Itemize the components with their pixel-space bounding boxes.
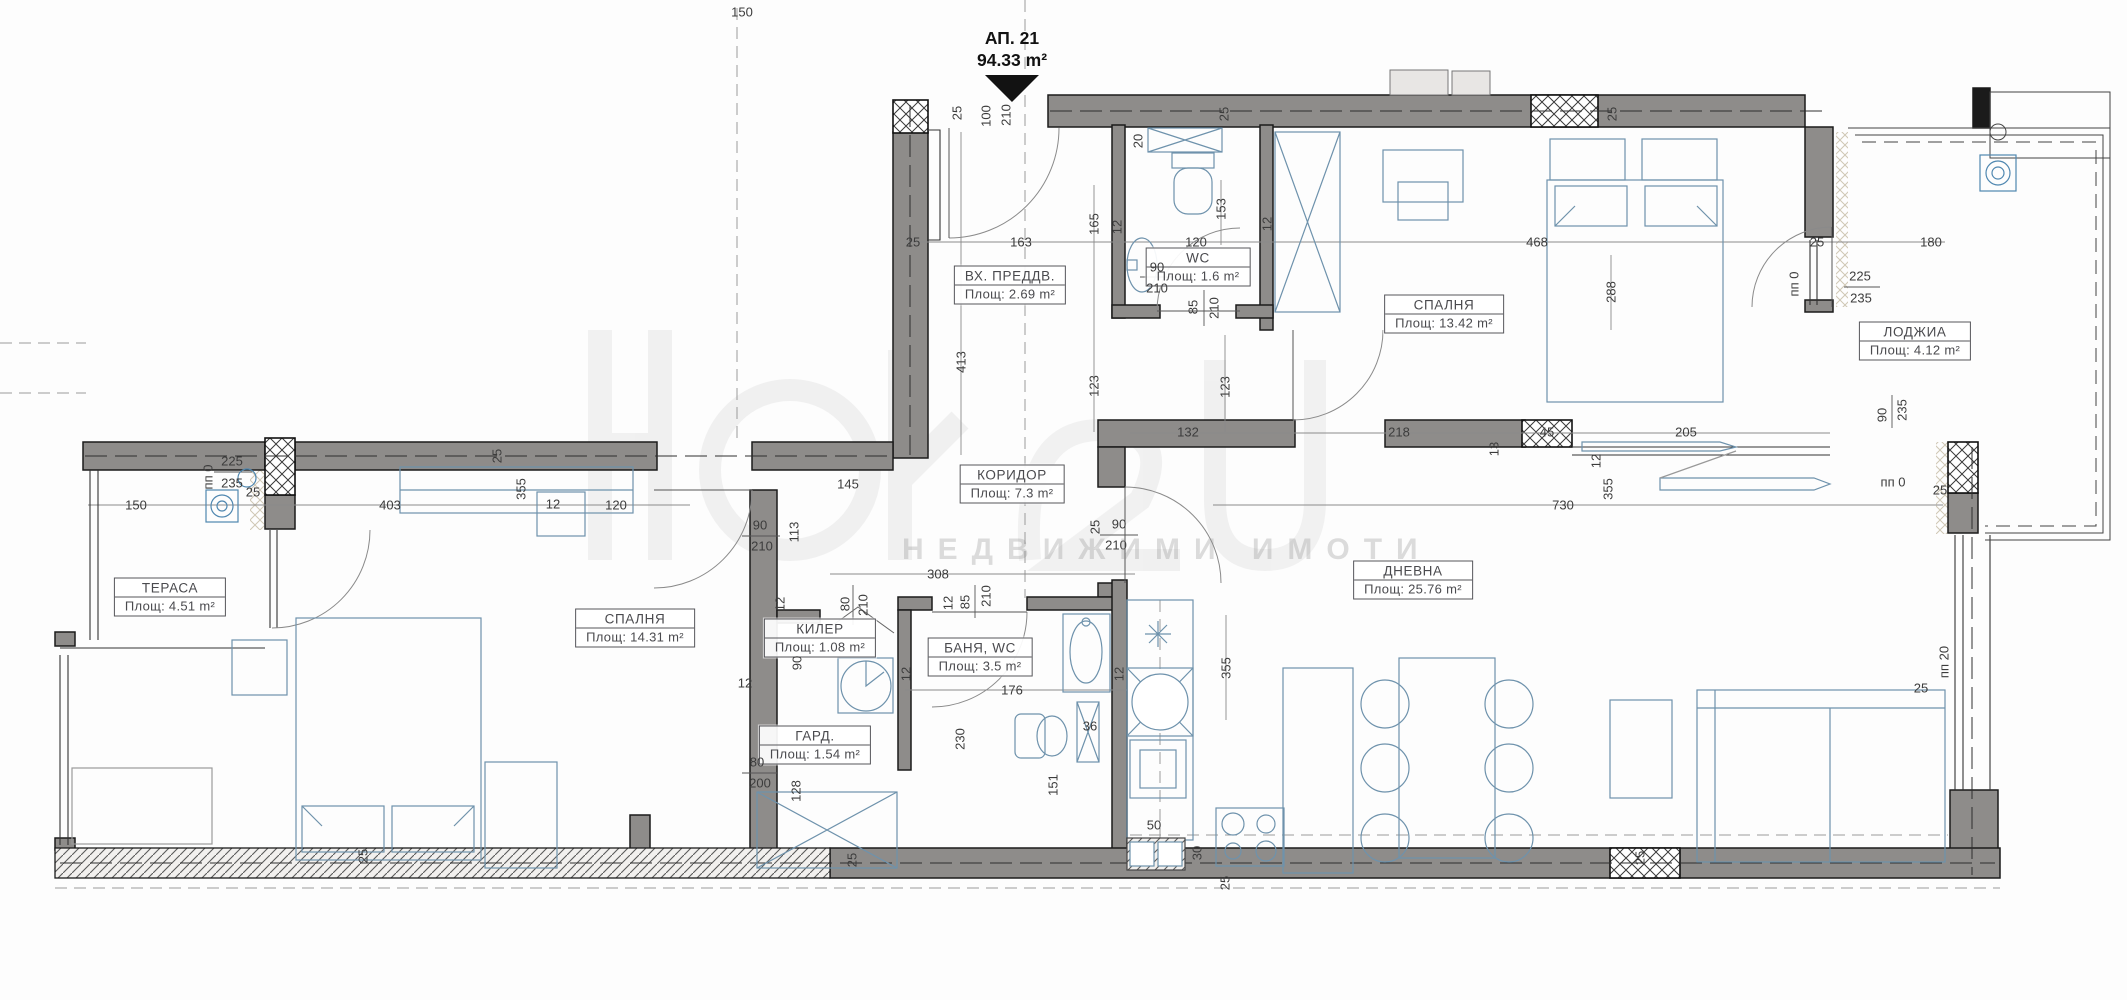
floor-plan-page: { "title": { "label": "АП. 21", "area": …: [0, 0, 2127, 1000]
furniture: [72, 128, 2016, 873]
loggia-outline: [1848, 92, 2110, 540]
title-block: АП. 21 94.33 m²: [977, 28, 1047, 102]
north-pointer-icon: [985, 75, 1039, 102]
door-arcs: [272, 128, 1832, 707]
floor-plan-drawing: [0, 0, 2127, 1000]
apartment-number: АП. 21: [977, 28, 1047, 50]
watermark-tagline: НЕДВИЖИМИ ИМОТИ: [902, 533, 1432, 567]
apartment-area: 94.33 m²: [977, 50, 1047, 72]
